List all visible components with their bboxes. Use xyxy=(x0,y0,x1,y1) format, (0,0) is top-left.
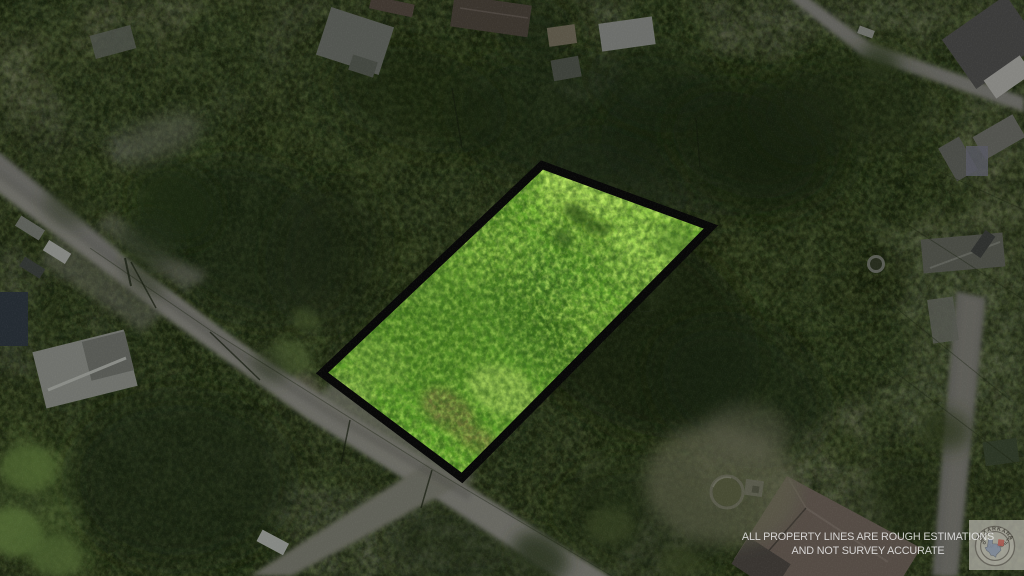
svg-text:AND NOT SURVEY ACCURATE: AND NOT SURVEY ACCURATE xyxy=(792,545,945,557)
svg-text:ALL PROPERTY LINES ARE ROUGH E: ALL PROPERTY LINES ARE ROUGH ESTIMATIONS xyxy=(742,531,994,543)
